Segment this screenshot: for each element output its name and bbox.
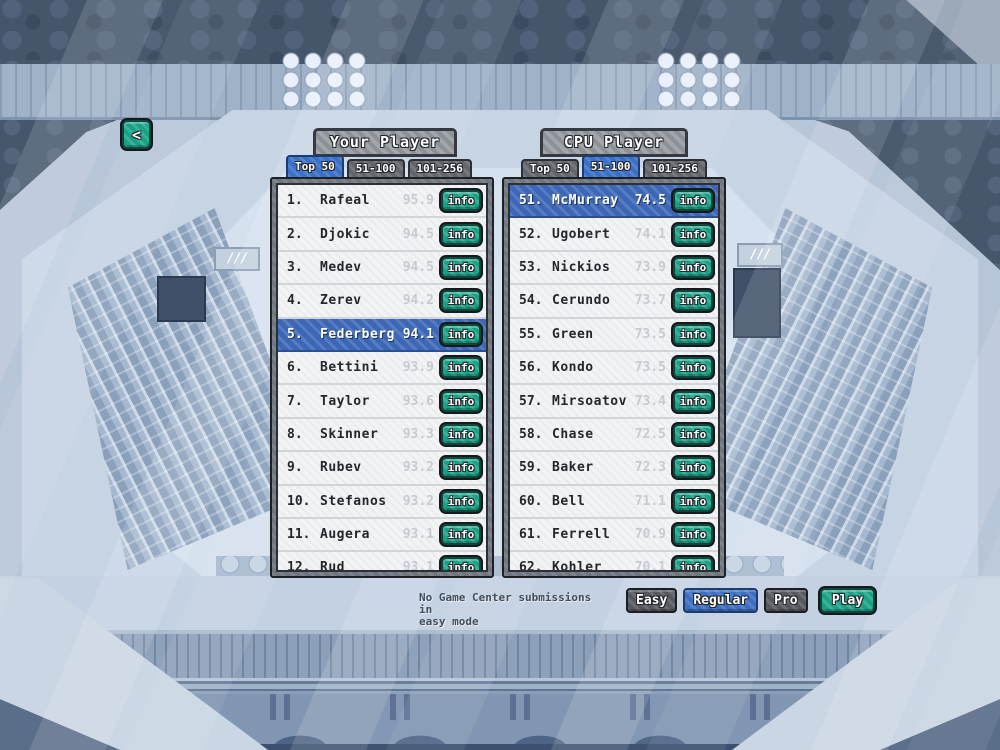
leaderboard-row[interactable]: 59. Baker 72.3 info [510,452,718,485]
player-name: Kondo [552,360,626,375]
your-player-panel: 1. Rafeal 95.9 info 2. Djokic 94.5 info … [270,177,494,578]
player-rank: 52. [519,227,552,242]
leaderboard-row[interactable]: 52. Ugobert 74.1 info [510,218,718,251]
player-rank: 56. [519,360,552,375]
player-rank: 7. [287,394,320,409]
note-line-1: No Game Center submissions in [419,592,609,616]
player-name: Mirsoatov [552,394,626,409]
leaderboard-row[interactable]: 1. Rafeal 95.9 info [278,185,486,218]
player-score: 73.5 [626,360,666,375]
player-score: 72.5 [626,427,666,442]
player-rank: 59. [519,460,552,475]
player-rank: 61. [519,527,552,542]
info-button[interactable]: info [673,224,713,245]
leaderboard-row[interactable]: 6. Bettini 93.9 info [278,352,486,385]
player-name: Skinner [320,427,394,442]
player-rank: 4. [287,293,320,308]
info-button[interactable]: info [673,457,713,478]
difficulty-group: EasyRegularPro [626,588,808,613]
cpu-player-list: 51. McMurray 74.5 info 52. Ugobert 74.1 … [508,183,720,572]
info-button[interactable]: info [673,491,713,512]
info-button[interactable]: info [673,357,713,378]
player-name: Ferrell [552,527,626,542]
cpu-player-panel: 51. McMurray 74.5 info 52. Ugobert 74.1 … [502,177,726,578]
player-score: 94.5 [394,260,434,275]
game-center-note: No Game Center submissions in easy mode [419,592,609,628]
player-name: Rubev [320,460,394,475]
play-button[interactable]: Play [820,588,875,613]
player-score: 73.4 [626,394,666,409]
info-button[interactable]: info [441,190,481,211]
player-rank: 11. [287,527,320,542]
info-button[interactable]: info [673,524,713,545]
player-score: 72.3 [626,460,666,475]
info-button[interactable]: info [441,257,481,278]
player-name: Bell [552,494,626,509]
leaderboard-row[interactable]: 54. Cerundo 73.7 info [510,285,718,318]
leaderboard-row[interactable]: 56. Kondo 73.5 info [510,352,718,385]
info-button[interactable]: info [441,391,481,412]
player-rank: 3. [287,260,320,275]
player-rank: 55. [519,327,552,342]
note-line-2: easy mode [419,616,609,628]
player-score: 74.5 [626,193,666,208]
difficulty-regular[interactable]: Regular [683,588,758,613]
your-player-tab-strip: Top 5051-100101-256 [286,155,472,179]
player-score: 73.7 [626,293,666,308]
back-button[interactable]: < [122,120,151,149]
leaderboard-row[interactable]: 7. Taylor 93.6 info [278,385,486,418]
info-button[interactable]: info [441,324,481,345]
tab-101-256[interactable]: 101-256 [408,159,472,179]
player-name: Federberg [320,327,394,342]
player-name: Medev [320,260,394,275]
player-rank: 9. [287,460,320,475]
tab-top-50[interactable]: Top 50 [286,155,344,179]
leaderboard-row[interactable]: 58. Chase 72.5 info [510,419,718,452]
leaderboard-row[interactable]: 8. Skinner 93.3 info [278,419,486,452]
player-score: 71.1 [626,494,666,509]
difficulty-pro[interactable]: Pro [764,588,807,613]
info-button[interactable]: info [441,524,481,545]
player-rank: 12. [287,560,320,572]
info-button[interactable]: info [673,290,713,311]
cpu-player-header: CPU Player [540,128,688,157]
player-score: 93.1 [394,560,434,572]
leaderboard-row[interactable]: 10. Stefanos 93.2 info [278,486,486,519]
player-score: 93.3 [394,427,434,442]
leaderboard-row[interactable]: 5. Federberg 94.1 info [278,319,486,352]
player-name: Kohler [552,560,626,572]
info-button[interactable]: info [441,457,481,478]
player-rank: 62. [519,560,552,572]
player-name: Baker [552,460,626,475]
player-score: 95.9 [394,193,434,208]
back-chevron-icon: < [132,126,141,144]
info-button[interactable]: info [441,424,481,445]
info-button[interactable]: info [673,324,713,345]
player-rank: 58. [519,427,552,442]
info-button[interactable]: info [441,557,481,572]
tab-101-256[interactable]: 101-256 [643,159,707,179]
player-rank: 53. [519,260,552,275]
player-name: Djokic [320,227,394,242]
leaderboard-row[interactable]: 12. Rud 93.1 info [278,552,486,572]
player-score: 93.2 [394,460,434,475]
player-score: 73.9 [626,260,666,275]
tab-top-50[interactable]: Top 50 [521,159,579,179]
difficulty-easy[interactable]: Easy [626,588,677,613]
player-name: Stefanos [320,494,394,509]
stadium-background: /// /// [0,0,1000,750]
player-rank: 6. [287,360,320,375]
player-name: Augera [320,527,394,542]
info-button[interactable]: info [441,357,481,378]
player-rank: 60. [519,494,552,509]
player-score: 94.5 [394,227,434,242]
info-button[interactable]: info [673,190,713,211]
player-score: 73.5 [626,327,666,342]
player-name: Bettini [320,360,394,375]
leaderboard-row[interactable]: 61. Ferrell 70.9 info [510,519,718,552]
info-button[interactable]: info [441,290,481,311]
player-score: 70.1 [626,560,666,572]
info-button[interactable]: info [441,491,481,512]
leaderboard-row[interactable]: 3. Medev 94.5 info [278,252,486,285]
player-rank: 2. [287,227,320,242]
leaderboard-row[interactable]: 4. Zerev 94.2 info [278,285,486,318]
player-name: Chase [552,427,626,442]
player-score: 93.1 [394,527,434,542]
info-button[interactable]: info [673,424,713,445]
info-button[interactable]: info [441,224,481,245]
cpu-player-tab-strip: Top 5051-100101-256 [521,155,707,179]
your-player-header: Your Player [313,128,457,157]
leaderboard-row[interactable]: 57. Mirsoatov 73.4 info [510,385,718,418]
tab-51-100[interactable]: 51-100 [582,155,640,179]
player-score: 93.2 [394,494,434,509]
player-name: Zerev [320,293,394,308]
player-rank: 5. [287,327,320,342]
info-button[interactable]: info [673,391,713,412]
info-button[interactable]: info [673,257,713,278]
player-name: Rud [320,560,394,572]
leaderboard-row[interactable]: 9. Rubev 93.2 info [278,452,486,485]
player-name: Rafeal [320,193,394,208]
player-name: Nickios [552,260,626,275]
player-name: Taylor [320,394,394,409]
leaderboard-row[interactable]: 53. Nickios 73.9 info [510,252,718,285]
player-rank: 8. [287,427,320,442]
player-score: 94.1 [394,327,434,342]
leaderboard-row[interactable]: 2. Djokic 94.5 info [278,218,486,251]
player-rank: 10. [287,494,320,509]
player-score: 94.2 [394,293,434,308]
leaderboard-row[interactable]: 51. McMurray 74.5 info [510,185,718,218]
player-rank: 51. [519,193,552,208]
leaderboard-row[interactable]: 62. Kohler 70.1 info [510,552,718,572]
leaderboard-row[interactable]: 60. Bell 71.1 info [510,486,718,519]
player-score: 93.9 [394,360,434,375]
game-screen: /// /// < Your Player CPU Player Top 505… [0,0,1000,750]
tab-51-100[interactable]: 51-100 [347,159,405,179]
player-rank: 1. [287,193,320,208]
player-rank: 54. [519,293,552,308]
info-button[interactable]: info [673,557,713,572]
player-name: Green [552,327,626,342]
your-player-list: 1. Rafeal 95.9 info 2. Djokic 94.5 info … [276,183,488,572]
bg-light-rays [0,0,1000,750]
leaderboard-row[interactable]: 11. Augera 93.1 info [278,519,486,552]
player-name: Ugobert [552,227,626,242]
player-rank: 57. [519,394,552,409]
player-score: 74.1 [626,227,666,242]
player-name: McMurray [552,193,626,208]
player-score: 93.6 [394,394,434,409]
player-score: 70.9 [626,527,666,542]
player-name: Cerundo [552,293,626,308]
leaderboard-row[interactable]: 55. Green 73.5 info [510,319,718,352]
